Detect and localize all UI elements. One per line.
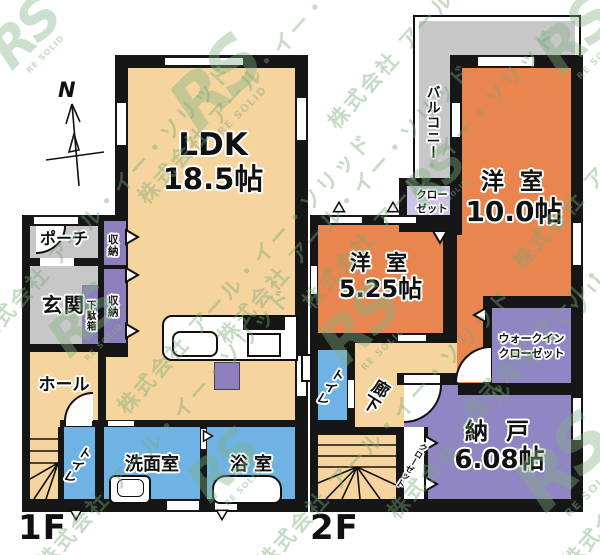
washbasin-bowl [117, 479, 144, 497]
label-closet-main: クロー ゼット [405, 189, 459, 216]
label-washroom: 洗面室 [104, 455, 200, 475]
window-arrow [386, 200, 400, 214]
label-western-10: 洋 室 10.0帖 [457, 170, 571, 227]
room-ldk-lower [104, 357, 128, 420]
vent-arrow [69, 507, 83, 523]
closet-door-arrow [431, 229, 449, 245]
compass-needle-icon [42, 82, 106, 190]
label-bathroom: 浴 室 [207, 455, 295, 475]
label-ldk: LDK 18.5帖 [128, 128, 298, 195]
room-ldk [128, 58, 298, 420]
closet-door-arrow [124, 228, 140, 246]
window-gap [167, 501, 199, 510]
window-gap [452, 103, 460, 137]
closet-door-arrow [423, 475, 439, 493]
window-gap [330, 217, 362, 223]
kitchen-sink [172, 331, 218, 357]
closet-main-line2: ゼット [405, 203, 459, 217]
western-10-area: 10.0帖 [457, 196, 571, 227]
label-walk-in-closet: ウォークイン クローゼット [492, 332, 571, 362]
kitchen-island [214, 362, 240, 390]
western-525-area: 5.25帖 [318, 276, 443, 303]
label-porch: ポーチ [30, 230, 98, 248]
western-525-name: 洋 室 [318, 252, 443, 276]
vent-arrow [215, 507, 229, 523]
window-gap [384, 217, 416, 223]
toilet-window-box [301, 354, 312, 382]
western-10-name: 洋 室 [457, 170, 571, 196]
label-western-525: 洋 室 5.25帖 [318, 252, 443, 302]
kitchen-cooktop-band [243, 317, 285, 330]
window-gap [165, 58, 243, 65]
wall [458, 383, 571, 395]
window-gap [117, 103, 126, 145]
window-gap [311, 266, 317, 294]
wall [95, 427, 104, 499]
window-gap [573, 223, 581, 265]
label-hall: ホール [30, 376, 98, 395]
door-gap [34, 217, 78, 224]
wall [310, 427, 404, 435]
wall [310, 333, 457, 343]
window-gap [478, 57, 534, 66]
kitchen-stove [247, 333, 281, 357]
watermark-logo: RSRE SOLID [0, 0, 74, 83]
window-arrow [332, 200, 346, 214]
label-storeroom: 納 戸 6.08帖 [428, 420, 571, 475]
floor-plan-canvas: N LDK 18.5帖 ポーチ 玄関 下駄箱 収納 収納 ホール トイレ 洗面室… [0, 0, 600, 555]
storeroom-area: 6.08帖 [428, 446, 571, 475]
label-storage-lower: 収納 [106, 286, 118, 326]
storeroom-name: 納 戸 [428, 420, 571, 446]
bathtub [212, 475, 282, 504]
compass: N [42, 82, 106, 190]
wall [571, 55, 583, 512]
label-shoe-cabinet: 下駄箱 [84, 291, 95, 341]
closet-door-arrow [472, 306, 488, 324]
door-gap [398, 335, 426, 341]
wic-line1: ウォークイン [492, 332, 571, 347]
closet-door-arrow [124, 322, 140, 340]
stairs-1f [30, 427, 58, 499]
door-gap [108, 421, 134, 426]
wall [58, 427, 64, 499]
floor-label-2f: 2F [310, 508, 359, 548]
ldk-area: 18.5帖 [128, 163, 298, 195]
wic-line2: クローゼット [492, 347, 571, 362]
door-gap [66, 421, 92, 426]
door-gap [404, 375, 440, 383]
wall [60, 420, 298, 427]
label-storage-upper: 収納 [106, 228, 118, 262]
door-gap [348, 380, 354, 408]
closet-door-arrow [124, 266, 140, 284]
floor-label-1f: 1F [18, 508, 67, 548]
door-gap [40, 258, 74, 266]
bath-door-arrow [202, 429, 214, 443]
label-balcony: バルコニー [424, 62, 440, 182]
wall [310, 420, 355, 427]
closet-main-line1: クロー [405, 189, 459, 203]
wall [483, 296, 571, 308]
wall [22, 344, 106, 352]
stairs-2f [318, 435, 396, 499]
ldk-name: LDK [128, 128, 298, 163]
window-gap [573, 398, 581, 440]
window-gap [297, 98, 306, 140]
